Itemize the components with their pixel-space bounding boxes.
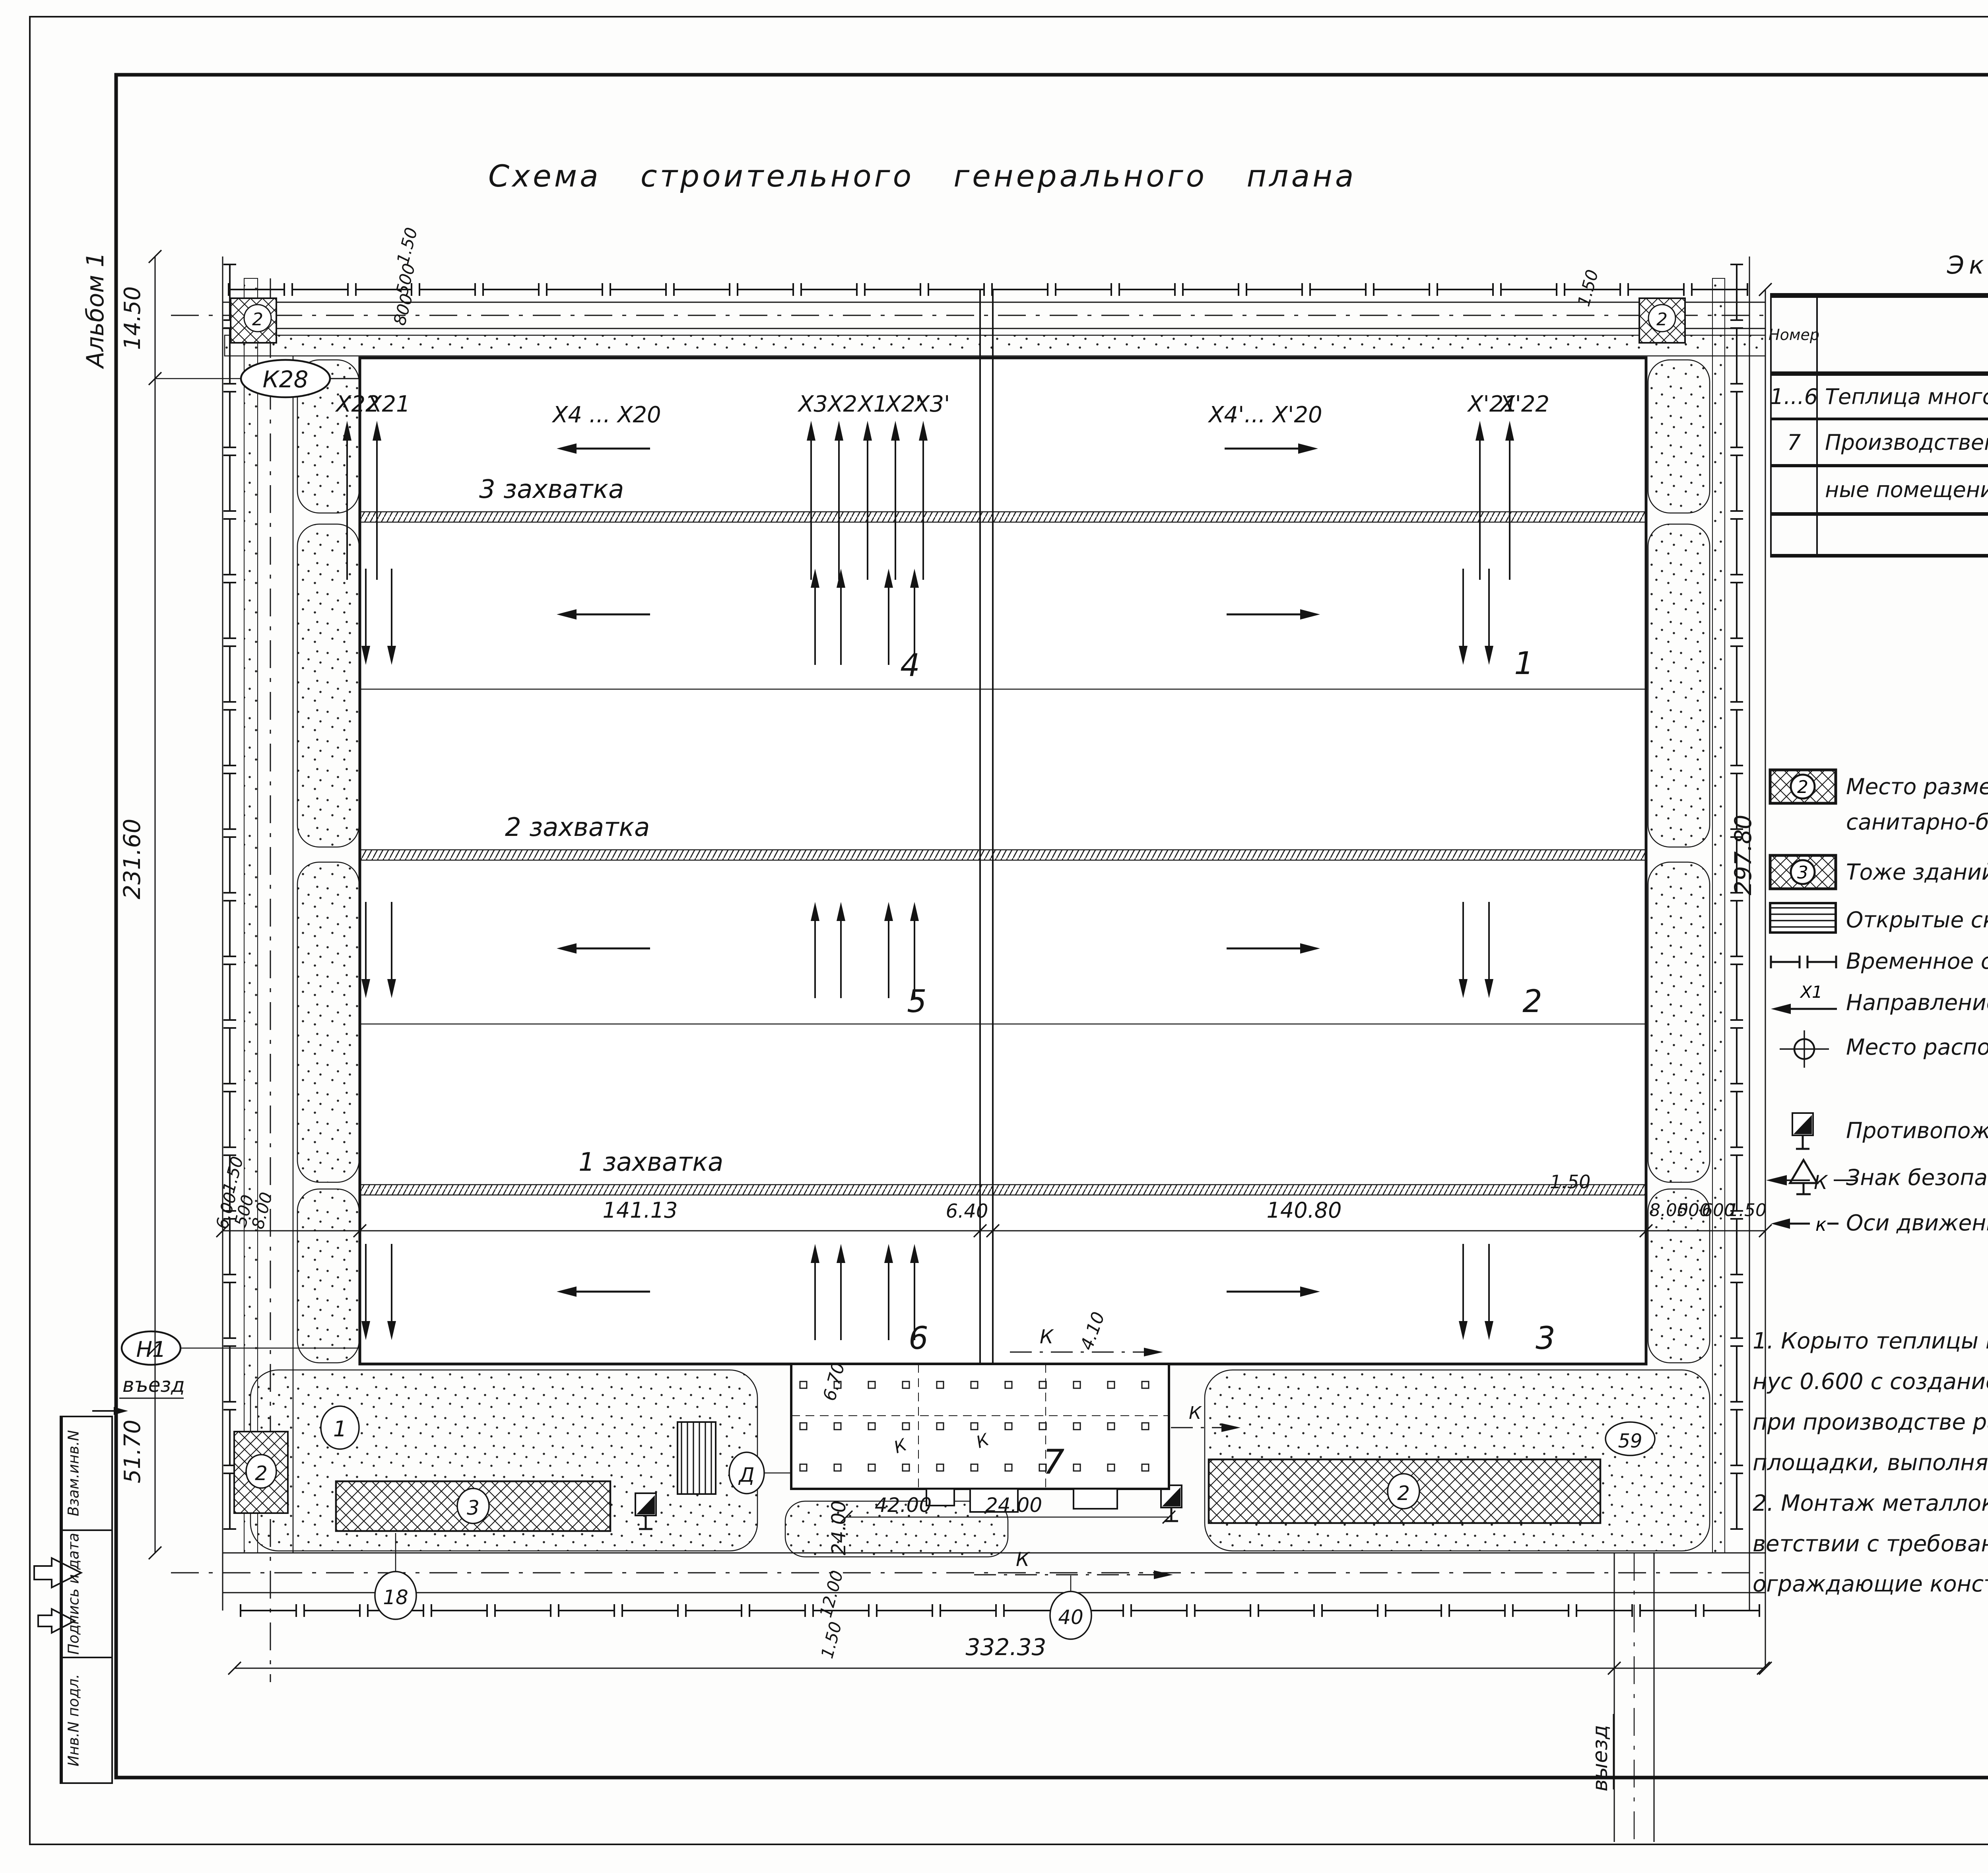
open-storage-area bbox=[678, 1422, 716, 1494]
fire-shield-2 bbox=[1161, 1485, 1182, 1521]
svg-text:2: 2 bbox=[1522, 984, 1542, 1020]
album-label: Альбом 1 bbox=[82, 215, 109, 406]
col-header: Номер bbox=[1772, 298, 1818, 376]
table-cell: Теплица многопролетная bbox=[1818, 376, 1988, 420]
svg-text:К: К bbox=[1189, 1403, 1202, 1423]
svg-text:X4 ... X20: X4 ... X20 bbox=[551, 402, 661, 428]
svg-text:332.33: 332.33 bbox=[966, 1634, 1046, 1661]
zone-2-label: 2 захватка bbox=[505, 813, 650, 842]
svg-text:X3: X3 bbox=[797, 391, 828, 417]
svg-text:К28: К28 bbox=[263, 366, 309, 393]
building-7-label: 7 bbox=[1043, 1442, 1065, 1482]
side-stamp-table: Взам.инв.N Подпись и дата Инв.N подл. bbox=[60, 1416, 113, 1784]
svg-text:2: 2 bbox=[1797, 777, 1808, 797]
explication: Экспликация помещений Номер Наименование… bbox=[1770, 251, 1988, 558]
legend-item: Противопожарный щит bbox=[1769, 1111, 1988, 1158]
legend-title: Условные обозначения bbox=[1769, 690, 1988, 719]
corner-building-right: 2 bbox=[1639, 298, 1685, 343]
table-cell: 7 bbox=[1772, 420, 1818, 467]
svg-text:X4'... X'20: X4'... X'20 bbox=[1208, 402, 1322, 428]
svg-text:X2: X2 bbox=[827, 391, 857, 417]
axis-marker-icon bbox=[1769, 1027, 1846, 1071]
zone-3-label: 3 захватка bbox=[479, 475, 624, 504]
axis-circle-40: 40 bbox=[1050, 1576, 1091, 1639]
stamp-value bbox=[84, 1658, 111, 1782]
entry-label: въезд bbox=[122, 1374, 185, 1397]
svg-text:1.50: 1.50 bbox=[1728, 1200, 1767, 1220]
table-cell: Производственные и вспомогатель- bbox=[1818, 420, 1988, 467]
area-circle-1: 1 bbox=[321, 1406, 359, 1449]
fire-shield-icon bbox=[1769, 1111, 1846, 1154]
hatched-box-3-icon: 3 bbox=[1769, 852, 1846, 892]
table-cell bbox=[1772, 467, 1818, 516]
svg-text:51.70: 51.70 bbox=[120, 1420, 146, 1483]
table-cell: ные помещения bbox=[1818, 467, 1988, 516]
col-header: Наименование bbox=[1818, 298, 1988, 376]
svg-text:X1: X1 bbox=[857, 391, 887, 417]
svg-text:3: 3 bbox=[1797, 863, 1808, 883]
svg-text:24.00: 24.00 bbox=[828, 1500, 850, 1555]
note-line: 1. Корыто теплицы выполняется на отметке… bbox=[1753, 1321, 1988, 1362]
table-cell bbox=[1818, 516, 1988, 554]
work-direction-icon: X1 bbox=[1769, 983, 1846, 1022]
note-line: площадки, выполняемой в подготовительный… bbox=[1753, 1443, 1988, 1483]
legend: Условные обозначения 2 Место размещения … bbox=[1769, 690, 1988, 1244]
svg-text:1.50: 1.50 bbox=[1550, 1171, 1590, 1193]
svg-text:3: 3 bbox=[1536, 1321, 1555, 1356]
stamp-label: Подпись и дата bbox=[61, 1531, 84, 1657]
exit-label: выезд bbox=[1588, 1725, 1612, 1791]
svg-text:1.50: 1.50 bbox=[393, 225, 421, 266]
temp-building-2-left: 2 bbox=[234, 1432, 288, 1513]
stamp-value bbox=[84, 1531, 111, 1657]
svg-text:231.60: 231.60 bbox=[118, 819, 146, 900]
svg-text:Н1: Н1 bbox=[136, 1337, 166, 1362]
corner-building-left: 2 bbox=[231, 298, 276, 343]
stamp-label: Инв.N подл. bbox=[61, 1658, 84, 1782]
svg-text:40: 40 bbox=[1058, 1606, 1083, 1629]
svg-text:24.00: 24.00 bbox=[985, 1494, 1042, 1517]
dimension-top-small: 1.50 500 800 1.50 bbox=[390, 225, 1602, 328]
svg-text:Д: Д bbox=[738, 1463, 754, 1486]
svg-text:1: 1 bbox=[333, 1416, 347, 1442]
site-plan-drawing: 18 bbox=[0, 0, 1988, 1873]
exit-road: выезд bbox=[1588, 1553, 1654, 1842]
svg-text:141.13: 141.13 bbox=[603, 1198, 678, 1223]
svg-text:К: К bbox=[1016, 1549, 1030, 1571]
svg-text:1: 1 bbox=[1514, 646, 1534, 682]
svg-text:X21: X21 bbox=[365, 391, 410, 417]
svg-text:18: 18 bbox=[383, 1586, 408, 1609]
legend-item: Временное ограждение по ГОСТ 23407-78 bbox=[1769, 941, 1988, 983]
open-storage-icon bbox=[1769, 900, 1846, 936]
svg-text:X1: X1 bbox=[1800, 983, 1823, 1002]
dimension-bottom-overall: 332.33 bbox=[228, 1634, 1770, 1675]
temp-fence-icon bbox=[1769, 941, 1846, 977]
svg-text:к: к bbox=[1815, 1214, 1827, 1235]
zone-1-label: 1 захватка bbox=[579, 1148, 723, 1177]
svg-text:5: 5 bbox=[907, 984, 927, 1020]
legend-item: к Оси движения крана при монтаже констру… bbox=[1769, 1203, 1988, 1244]
svg-text:2: 2 bbox=[252, 309, 263, 330]
svg-text:X'22: X'22 bbox=[1499, 391, 1549, 417]
drawing-sheet: 18 bbox=[0, 0, 1988, 1873]
note-line: 2. Монтаж металлоконструкций теплиц выпо… bbox=[1753, 1483, 1988, 1524]
note-line: ограждающие конструкции". bbox=[1753, 1564, 1988, 1605]
svg-text:6.40: 6.40 bbox=[946, 1200, 988, 1222]
svg-text:42.00: 42.00 bbox=[875, 1494, 932, 1517]
axis-circle-d: Д bbox=[729, 1452, 791, 1494]
note-line: нус 0.600 с созданием проектного уклона … bbox=[1753, 1362, 1988, 1402]
svg-text:4: 4 bbox=[900, 648, 920, 684]
legend-item: 2 Место размещения временных зданий адми… bbox=[1769, 767, 1988, 852]
table-cell: 1...6 bbox=[1772, 376, 1818, 420]
svg-text:6: 6 bbox=[909, 1321, 928, 1356]
svg-text:500: 500 bbox=[392, 261, 419, 297]
area-circle-59: 59 bbox=[1606, 1422, 1655, 1455]
page-title: Схема строительного генерального плана bbox=[488, 158, 1356, 194]
temp-building-2-right: 2 bbox=[1209, 1459, 1600, 1523]
svg-text:14.50: 14.50 bbox=[120, 286, 146, 350]
svg-text:X3': X3' bbox=[913, 391, 950, 417]
table-cell bbox=[1772, 516, 1818, 554]
svg-text:297.80: 297.80 bbox=[1730, 815, 1757, 896]
explication-table: Номер Наименование Примечание 1...6 Тепл… bbox=[1770, 293, 1988, 558]
notes: 1. Корыто теплицы выполняется на отметке… bbox=[1753, 1321, 1988, 1605]
svg-text:59: 59 bbox=[1618, 1430, 1642, 1452]
storage-building-3: 3 bbox=[336, 1481, 610, 1531]
legend-item: Знак безопасности bbox=[1769, 1158, 1988, 1203]
svg-text:800: 800 bbox=[390, 291, 417, 327]
legend-item: Место расположения знаков закрепления ра… bbox=[1769, 1027, 1988, 1111]
svg-text:1.50: 1.50 bbox=[817, 1620, 846, 1661]
greenhouse-plan: 3 захватка 2 захватка 1 захватка 4 1 5 2… bbox=[360, 290, 1646, 1364]
safety-sign-icon bbox=[1769, 1158, 1846, 1201]
note-line: ветствии с требованиями СНиП 3.03.01-87 … bbox=[1753, 1524, 1988, 1564]
svg-text:2: 2 bbox=[1397, 1482, 1410, 1505]
stamp-label: Взам.инв.N bbox=[61, 1417, 84, 1529]
legend-item: 3 Тоже зданий складского назначения bbox=[1769, 852, 1988, 900]
stamp-value bbox=[84, 1417, 111, 1529]
svg-text:12.00: 12.00 bbox=[816, 1568, 847, 1620]
legend-item: Открытые складские площадки bbox=[1769, 900, 1988, 941]
legend-item: X1 Направление производства работ по про… bbox=[1769, 983, 1988, 1027]
crane-axis-icon: к bbox=[1769, 1203, 1846, 1243]
note-line: при производстве работ по вертикальной п… bbox=[1753, 1402, 1988, 1443]
svg-text:2: 2 bbox=[255, 1462, 268, 1485]
svg-text:2: 2 bbox=[1656, 309, 1668, 330]
svg-text:3: 3 bbox=[467, 1496, 480, 1519]
hatched-box-2-icon: 2 bbox=[1769, 767, 1846, 806]
svg-text:140.80: 140.80 bbox=[1267, 1198, 1342, 1223]
explication-title: Экспликация помещений bbox=[1770, 251, 1988, 280]
svg-text:К: К bbox=[1040, 1326, 1054, 1348]
